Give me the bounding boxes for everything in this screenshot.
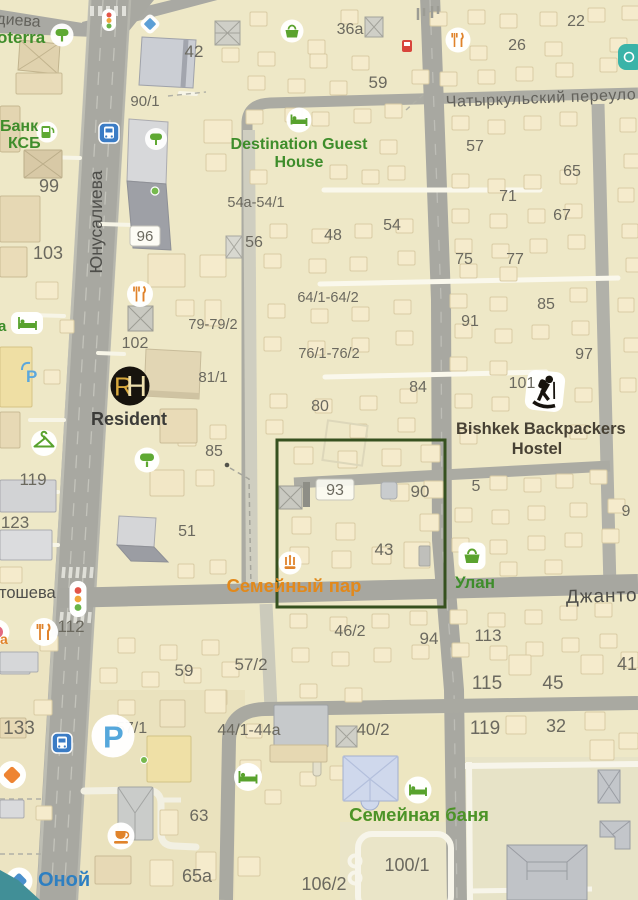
svg-text:43: 43 — [375, 540, 394, 559]
svg-text:90/1: 90/1 — [130, 93, 159, 110]
svg-text:102: 102 — [122, 335, 149, 352]
svg-text:42: 42 — [185, 42, 204, 61]
svg-text:P: P — [26, 367, 37, 386]
svg-text:Resident: Resident — [91, 409, 167, 429]
svg-text:96: 96 — [137, 228, 154, 245]
svg-text:Банк: Банк — [0, 118, 39, 135]
svg-text:133: 133 — [3, 718, 35, 739]
svg-text:36а: 36а — [337, 21, 364, 38]
svg-text:75: 75 — [455, 251, 473, 268]
svg-text:H: H — [126, 371, 147, 403]
svg-text:85: 85 — [205, 443, 223, 460]
svg-text:56: 56 — [245, 234, 263, 251]
svg-text:57/2: 57/2 — [234, 655, 267, 674]
svg-text:99: 99 — [39, 176, 59, 196]
svg-text:91: 91 — [461, 313, 479, 330]
svg-text:103: 103 — [33, 243, 63, 263]
svg-text:Bishkek Backpackers: Bishkek Backpackers — [456, 420, 626, 438]
svg-text:51: 51 — [178, 523, 196, 540]
svg-text:54: 54 — [383, 217, 401, 234]
svg-text:54а-54/1: 54а-54/1 — [227, 195, 284, 211]
svg-text:101: 101 — [509, 375, 536, 392]
svg-text:93: 93 — [326, 482, 344, 499]
svg-text:59: 59 — [369, 73, 388, 92]
svg-text:а: а — [0, 631, 8, 647]
svg-text:Hostel: Hostel — [512, 440, 562, 458]
svg-text:67: 67 — [553, 207, 571, 224]
svg-text:Destination Guest: Destination Guest — [231, 136, 369, 153]
svg-text:9: 9 — [622, 503, 631, 520]
svg-text:41: 41 — [617, 654, 637, 674]
svg-text:House: House — [275, 154, 324, 171]
svg-text:P: P — [103, 720, 124, 755]
svg-text:32: 32 — [546, 716, 566, 736]
svg-text:а: а — [0, 318, 7, 335]
svg-text:71: 71 — [499, 188, 517, 205]
svg-text:26: 26 — [508, 37, 526, 54]
svg-text:Юнусалиева: Юнусалиева — [86, 170, 106, 273]
svg-text:40/2: 40/2 — [356, 720, 389, 739]
svg-text:65а: 65а — [182, 866, 213, 886]
svg-text:46/2: 46/2 — [334, 623, 365, 640]
svg-text:Джанто: Джанто — [566, 585, 638, 608]
svg-text:90: 90 — [411, 482, 430, 501]
svg-text:84: 84 — [409, 379, 427, 396]
svg-text:119: 119 — [470, 718, 500, 739]
svg-text:64/1-64/2: 64/1-64/2 — [297, 290, 358, 306]
svg-text:Улан: Улан — [455, 573, 495, 592]
svg-text:79-79/2: 79-79/2 — [188, 317, 237, 333]
svg-text:Оной: Оной — [38, 869, 90, 891]
svg-text:Семейный пар: Семейный пар — [226, 575, 361, 596]
svg-text:76/1-76/2: 76/1-76/2 — [298, 346, 359, 362]
svg-text:63: 63 — [190, 806, 209, 825]
svg-text:85: 85 — [537, 296, 555, 313]
svg-text:115: 115 — [472, 673, 502, 694]
svg-text:65: 65 — [563, 163, 581, 180]
svg-text:48: 48 — [324, 227, 342, 244]
svg-text:106/2: 106/2 — [301, 874, 346, 894]
svg-text:Семейная баня: Семейная баня — [349, 804, 489, 825]
svg-text:59: 59 — [175, 661, 194, 680]
svg-text:123: 123 — [1, 513, 29, 532]
svg-text:80: 80 — [311, 398, 329, 415]
svg-text:113: 113 — [474, 626, 501, 645]
svg-text:77: 77 — [506, 251, 524, 268]
svg-text:81/1: 81/1 — [198, 369, 227, 386]
svg-text:44/1-44а: 44/1-44а — [217, 722, 280, 739]
svg-text:oterra: oterra — [0, 28, 46, 47]
svg-text:5: 5 — [472, 478, 481, 495]
svg-text:97: 97 — [575, 346, 593, 363]
svg-text:112: 112 — [57, 617, 84, 636]
svg-text:119: 119 — [19, 470, 46, 489]
svg-text:тошева: тошева — [0, 584, 57, 602]
svg-text:45: 45 — [542, 673, 563, 694]
svg-text:100/1: 100/1 — [384, 855, 429, 875]
svg-text:22: 22 — [567, 13, 585, 30]
svg-text:94: 94 — [420, 629, 439, 648]
svg-text:КСБ: КСБ — [8, 135, 41, 152]
svg-text:57: 57 — [466, 138, 484, 155]
